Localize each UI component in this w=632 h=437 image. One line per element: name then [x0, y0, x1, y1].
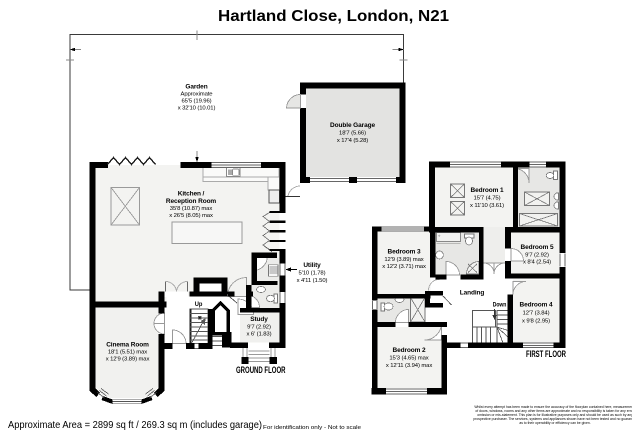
svg-text:x 12'2 (3.71) max: x 12'2 (3.71) max [382, 264, 426, 270]
svg-text:Bedroom 5: Bedroom 5 [520, 244, 554, 251]
svg-text:9'7 (2.92): 9'7 (2.92) [247, 325, 271, 331]
svg-text:x 26'5 (8.05) max: x 26'5 (8.05) max [169, 213, 213, 219]
svg-text:Kitchen /: Kitchen / [178, 191, 205, 198]
svg-text:x 12'9 (3.89) max: x 12'9 (3.89) max [106, 357, 150, 363]
svg-text:18'1 (5.51) max: 18'1 (5.51) max [108, 350, 147, 356]
svg-text:x 6' (1.83): x 6' (1.83) [247, 332, 272, 338]
svg-text:x 4'11 (1.50): x 4'11 (1.50) [297, 278, 328, 284]
svg-text:x 17'4 (5.28): x 17'4 (5.28) [337, 138, 368, 144]
svg-text:Approximate: Approximate [181, 92, 214, 98]
svg-text:9'7 (2.92): 9'7 (2.92) [525, 253, 549, 259]
svg-text:5'10 (1.78): 5'10 (1.78) [299, 271, 326, 277]
svg-text:Double Garage: Double Garage [330, 122, 375, 129]
svg-text:x 32'10 (10.01): x 32'10 (10.01) [178, 106, 216, 112]
svg-text:Landing: Landing [460, 290, 485, 297]
svg-text:Bedroom 3: Bedroom 3 [387, 249, 421, 256]
svg-text:GROUND FLOOR: GROUND FLOOR [236, 365, 286, 375]
svg-text:Bedroom 2: Bedroom 2 [392, 347, 426, 354]
svg-text:For identification only - Not: For identification only - Not to scale [263, 425, 361, 431]
svg-text:x 11'10 (3.61): x 11'10 (3.61) [470, 203, 504, 209]
svg-text:65'5 (19.96): 65'5 (19.96) [181, 99, 211, 105]
svg-text:Hartland Close, London, N21: Hartland Close, London, N21 [218, 8, 449, 25]
svg-text:FIRST FLOOR: FIRST FLOOR [526, 349, 566, 359]
svg-text:Reception Room: Reception Room [166, 198, 217, 205]
svg-text:Down: Down [493, 302, 507, 309]
svg-text:15'3 (4.65) max: 15'3 (4.65) max [389, 356, 428, 362]
svg-text:as to their operability or eff: as to their operability or efficiency ca… [519, 421, 590, 425]
svg-text:Approximate Area = 2899 sq ft: Approximate Area = 2899 sq ft / 269.3 sq… [8, 420, 262, 431]
svg-text:x 8'4 (2.54): x 8'4 (2.54) [523, 260, 551, 266]
svg-text:x 9'8 (2.95): x 9'8 (2.95) [522, 319, 550, 325]
svg-text:35'8 (10.87) max: 35'8 (10.87) max [170, 206, 213, 212]
svg-text:Cinema Room: Cinema Room [106, 342, 149, 349]
svg-text:18'7 (5.66): 18'7 (5.66) [339, 131, 366, 137]
svg-text:Utility: Utility [303, 262, 321, 269]
svg-text:15'7 (4.75): 15'7 (4.75) [474, 196, 501, 202]
svg-text:Up: Up [195, 301, 203, 308]
svg-text:Study: Study [250, 316, 268, 323]
svg-text:Bedroom 1: Bedroom 1 [470, 187, 504, 194]
svg-text:Garden: Garden [185, 84, 207, 91]
svg-text:12'9 (3.89) max: 12'9 (3.89) max [384, 257, 423, 263]
svg-text:12'7 (3.84): 12'7 (3.84) [523, 311, 550, 317]
svg-text:x 12'11 (3.94) max: x 12'11 (3.94) max [386, 363, 433, 369]
svg-text:Bedroom 4: Bedroom 4 [519, 302, 553, 309]
